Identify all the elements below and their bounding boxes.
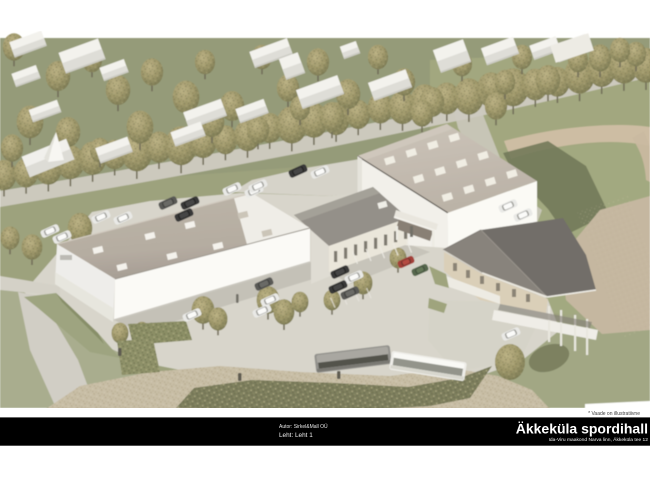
svg-text:Autor: Sirkel&Mall OÜ: Autor: Sirkel&Mall OÜ — [279, 423, 328, 430]
svg-text:Ida-Viru maakond Narva linn, Ä: Ida-Viru maakond Narva linn, Äkkeküla te… — [549, 436, 649, 443]
svg-text:Leht: Leht 1: Leht: Leht 1 — [279, 432, 313, 439]
svg-text:Äkkeküla spordihall: Äkkeküla spordihall — [516, 421, 648, 437]
svg-text:* Vaade on illustratiivne: * Vaade on illustratiivne — [588, 411, 640, 417]
